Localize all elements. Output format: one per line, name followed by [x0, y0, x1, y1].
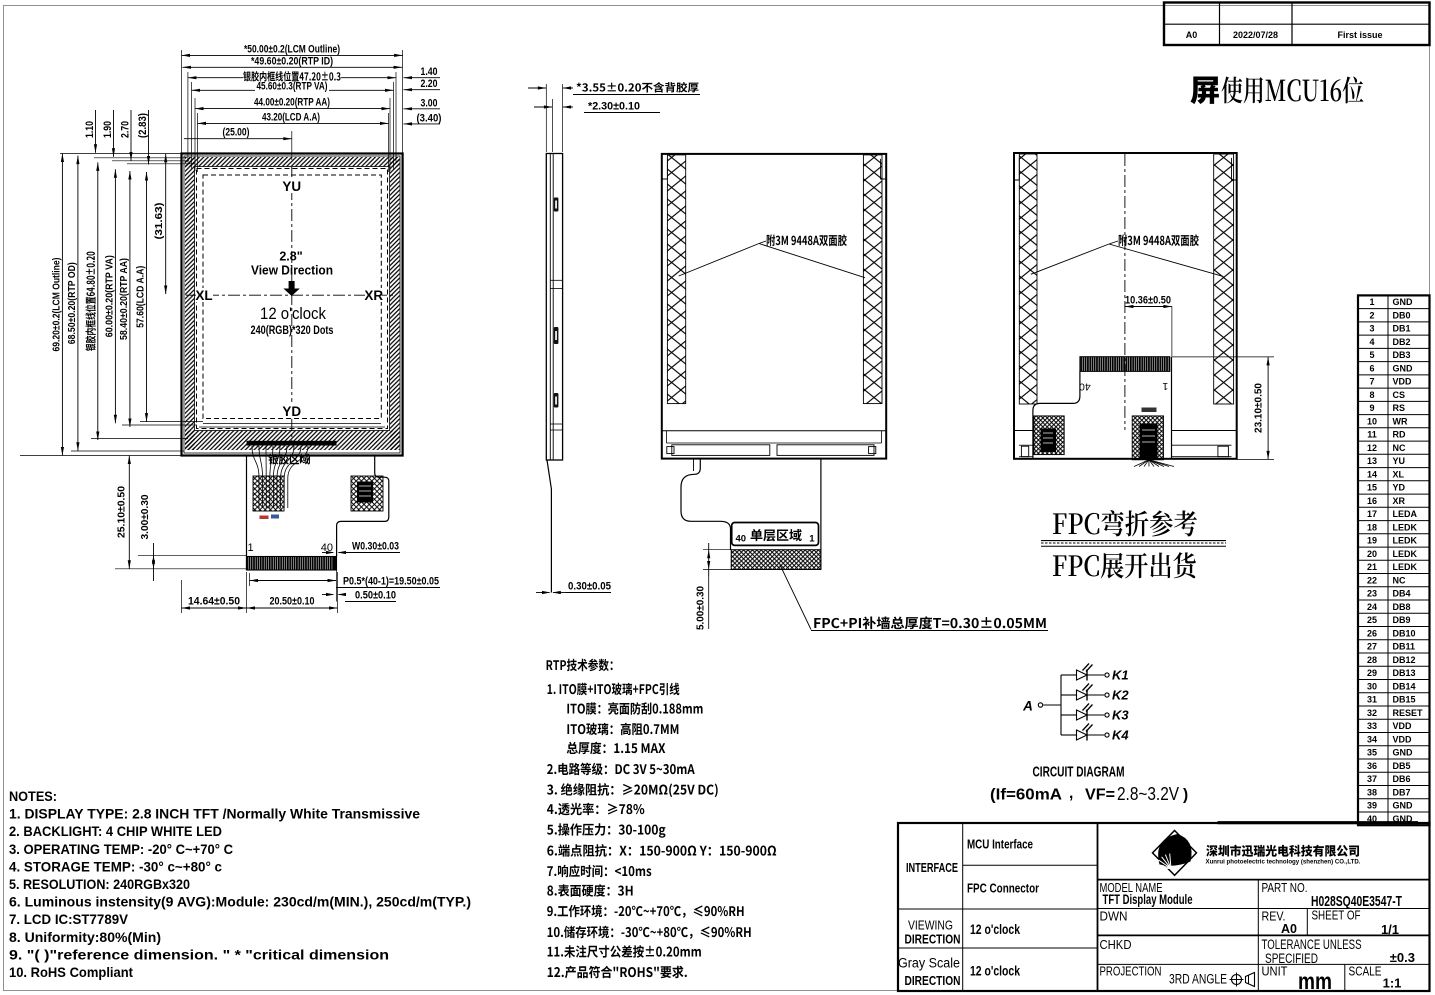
svg-text:DB4: DB4 [1393, 589, 1411, 599]
svg-text:VIEWING: VIEWING [908, 918, 953, 933]
svg-text:LEDK: LEDK [1393, 549, 1418, 559]
svg-text:DIRECTION: DIRECTION [905, 932, 961, 947]
svg-text:RESET: RESET [1393, 708, 1424, 718]
svg-text:12: 12 [1367, 443, 1377, 453]
svg-text:14: 14 [1367, 469, 1377, 479]
svg-text:12 o'clock: 12 o'clock [970, 964, 1020, 979]
svg-text:15: 15 [1367, 483, 1377, 493]
svg-text:(2.83): (2.83) [137, 113, 149, 138]
svg-text:W0.30±0.03: W0.30±0.03 [352, 541, 399, 553]
svg-text:DB10: DB10 [1393, 628, 1416, 638]
svg-text:DB6: DB6 [1393, 774, 1411, 784]
svg-text:A0: A0 [1281, 922, 1297, 936]
svg-text:1: 1 [248, 542, 254, 554]
svg-text:9: 9 [1369, 403, 1374, 413]
svg-text:4: 4 [1369, 337, 1374, 347]
svg-text:38: 38 [1367, 787, 1377, 797]
svg-text:RD: RD [1393, 430, 1406, 440]
svg-text:FPC Connector: FPC Connector [967, 881, 1039, 896]
svg-text:14.64±0.50: 14.64±0.50 [188, 596, 240, 608]
svg-text:DB13: DB13 [1393, 668, 1416, 678]
svg-text:DB12: DB12 [1393, 655, 1416, 665]
svg-text:DIRECTION: DIRECTION [905, 973, 961, 988]
svg-text:*49.60±0.20(RTP ID): *49.60±0.20(RTP ID) [251, 55, 333, 67]
svg-text:24: 24 [1367, 602, 1377, 612]
svg-text:7. LCD IC:ST7789V: 7. LCD IC:ST7789V [9, 911, 129, 927]
svg-text:21: 21 [1367, 562, 1377, 572]
svg-text:VDD: VDD [1393, 721, 1413, 731]
svg-text:8. Uniformity:80%(Min): 8. Uniformity:80%(Min) [9, 929, 161, 945]
svg-text:DB5: DB5 [1393, 761, 1411, 771]
svg-text:DB1: DB1 [1393, 324, 1411, 334]
svg-text:K1: K1 [1112, 668, 1129, 683]
svg-text:37: 37 [1367, 774, 1377, 784]
svg-text:1: 1 [809, 534, 815, 545]
svg-text:PROJECTION: PROJECTION [1100, 964, 1162, 979]
svg-text:6: 6 [1369, 363, 1374, 373]
svg-text:*2.30±0.10: *2.30±0.10 [588, 101, 640, 113]
svg-text:,: , [1069, 785, 1073, 802]
svg-text:57.60(LCD A.A): 57.60(LCD A.A) [135, 266, 147, 328]
svg-text:LEDK: LEDK [1393, 536, 1418, 546]
svg-text:20: 20 [1367, 549, 1377, 559]
svg-text:36: 36 [1367, 761, 1377, 771]
svg-text:NC: NC [1393, 443, 1406, 453]
svg-text:CHKD: CHKD [1100, 937, 1132, 952]
svg-text:4. STORAGE TEMP: -30° c~+80° c: 4. STORAGE TEMP: -30° c~+80° c [9, 858, 222, 874]
svg-text:YU: YU [1393, 456, 1406, 466]
svg-text:1: 1 [1162, 380, 1168, 392]
svg-text:3: 3 [1369, 324, 1374, 334]
svg-text:DB9: DB9 [1393, 615, 1411, 625]
svg-text:GND: GND [1393, 801, 1414, 811]
svg-text:5. RESOLUTION: 240RGBx320: 5. RESOLUTION: 240RGBx320 [9, 876, 190, 892]
svg-text:1: 1 [1369, 297, 1374, 307]
svg-text:P0.5*(40-1)=19.50±0.05: P0.5*(40-1)=19.50±0.05 [343, 576, 439, 588]
svg-text:45.60±0.3(RTP VA): 45.60±0.3(RTP VA) [257, 80, 328, 92]
svg-text:23: 23 [1367, 589, 1377, 599]
svg-text:XR: XR [1393, 496, 1406, 506]
svg-text:LEDK: LEDK [1393, 562, 1418, 572]
svg-text:mm: mm [1298, 968, 1332, 994]
svg-text:DB15: DB15 [1393, 695, 1416, 705]
svg-text:(31.63): (31.63) [153, 203, 165, 240]
svg-text:16: 16 [1367, 496, 1377, 506]
svg-text:2: 2 [1369, 311, 1374, 321]
svg-text:26: 26 [1367, 628, 1377, 638]
svg-text:30: 30 [1367, 681, 1377, 691]
svg-text:SCALE: SCALE [1349, 964, 1382, 979]
svg-text:XL: XL [1393, 469, 1405, 479]
svg-text:0.50±0.10: 0.50±0.10 [355, 590, 396, 602]
svg-text:25.10±0.50: 25.10±0.50 [116, 486, 128, 538]
svg-text:9. "( )"reference dimension. ": 9. "( )"reference dimension. " * "critic… [9, 946, 389, 962]
svg-text:10. RoHS Compliant: 10. RoHS Compliant [9, 964, 133, 980]
svg-text:3.00: 3.00 [421, 97, 438, 109]
svg-text:LEDK: LEDK [1393, 522, 1418, 532]
svg-text:1.40: 1.40 [421, 66, 438, 78]
svg-text:GND: GND [1393, 748, 1414, 758]
svg-text:3. OPERATING TEMP: -20° C~+70°: 3. OPERATING TEMP: -20° C~+70° C [9, 841, 233, 857]
svg-text:K3: K3 [1112, 708, 1129, 723]
svg-text:YU: YU [282, 179, 301, 194]
svg-text:XR: XR [364, 288, 383, 303]
svg-text:12 o'clock: 12 o'clock [260, 305, 327, 323]
svg-text:2.20: 2.20 [421, 78, 438, 90]
svg-text:34: 34 [1367, 734, 1377, 744]
svg-text:Gray Scale: Gray Scale [898, 956, 960, 971]
svg-text:VF=: VF= [1085, 787, 1115, 804]
svg-text:58.40±0.20(RTP AA): 58.40±0.20(RTP AA) [118, 258, 130, 340]
svg-text:28: 28 [1367, 655, 1377, 665]
svg-text:22: 22 [1367, 575, 1377, 585]
svg-text:UNIT: UNIT [1262, 964, 1288, 979]
svg-text:1.10: 1.10 [84, 121, 96, 138]
svg-text:NOTES:: NOTES: [9, 788, 57, 804]
svg-text:2.8~3.2V: 2.8~3.2V [1117, 783, 1180, 804]
svg-text:2.70: 2.70 [120, 121, 132, 138]
svg-text:68.50±0.20(RTP OD): 68.50±0.20(RTP OD) [66, 262, 78, 344]
svg-text:43.20(LCD A.A): 43.20(LCD A.A) [262, 111, 320, 123]
svg-text:DB3: DB3 [1393, 350, 1411, 360]
svg-text:TFT Display Module: TFT Display Module [1103, 892, 1193, 907]
svg-text:Xunrui photoelectric technolog: Xunrui photoelectric technology (shenzhe… [1206, 859, 1361, 866]
svg-text:RS: RS [1393, 403, 1406, 413]
svg-text:YD: YD [282, 404, 301, 419]
svg-text:DB7: DB7 [1393, 787, 1411, 797]
svg-text:DB0: DB0 [1393, 311, 1411, 321]
svg-text:25: 25 [1367, 615, 1377, 625]
svg-text:35: 35 [1367, 748, 1377, 758]
svg-text:3RD ANGLE: 3RD ANGLE [1169, 972, 1227, 987]
svg-text:12 o'clock: 12 o'clock [970, 922, 1020, 937]
svg-text:39: 39 [1367, 801, 1377, 811]
svg-text:18: 18 [1367, 522, 1377, 532]
svg-text:6. Luminous instensity(9 AVG):: 6. Luminous instensity(9 AVG):Module: 23… [9, 894, 471, 910]
svg-text:3.00±0.30: 3.00±0.30 [139, 494, 151, 539]
svg-text:20.50±0.10: 20.50±0.10 [270, 596, 315, 608]
svg-text:2022/07/28: 2022/07/28 [1233, 30, 1278, 40]
svg-text:1/1: 1/1 [1381, 922, 1399, 937]
svg-text:GND: GND [1393, 297, 1414, 307]
svg-text:A0: A0 [1186, 30, 1198, 40]
svg-text:40: 40 [1079, 381, 1091, 393]
svg-text:44.00±0.20(RTP AA): 44.00±0.20(RTP AA) [254, 97, 330, 109]
svg-text:DB11: DB11 [1393, 642, 1416, 652]
svg-text:1:1: 1:1 [1383, 976, 1402, 991]
svg-text:*50.00±0.2(LCM Outline): *50.00±0.2(LCM Outline) [244, 43, 340, 55]
svg-text:2. BACKLIGHT: 4 CHIP WHITE LED: 2. BACKLIGHT: 4 CHIP WHITE LED [9, 823, 222, 839]
svg-text:(3.40): (3.40) [417, 112, 442, 124]
svg-text:7: 7 [1369, 377, 1374, 387]
svg-text:±0.3: ±0.3 [1390, 950, 1415, 965]
svg-text:DWN: DWN [1100, 909, 1128, 924]
svg-text:CIRCUIT DIAGRAM: CIRCUIT DIAGRAM [1033, 765, 1125, 781]
svg-text:40: 40 [736, 534, 747, 545]
svg-text:View Direction: View Direction [251, 264, 333, 278]
svg-text:TOLERANCE UNLESS: TOLERANCE UNLESS [1262, 937, 1362, 952]
svg-text:1.90: 1.90 [102, 121, 114, 138]
svg-text:10: 10 [1367, 416, 1377, 426]
svg-text:XL: XL [195, 288, 212, 303]
svg-text:PART NO.: PART NO. [1262, 880, 1308, 895]
svg-text:60.00±0.20(RTP VA): 60.00±0.20(RTP VA) [103, 255, 115, 337]
svg-text:19: 19 [1367, 536, 1377, 546]
svg-text:8: 8 [1369, 390, 1374, 400]
svg-text:33: 33 [1367, 721, 1377, 731]
svg-text:0.30±0.05: 0.30±0.05 [568, 581, 611, 593]
svg-text:GND: GND [1393, 363, 1414, 373]
svg-text:WR: WR [1393, 416, 1408, 426]
svg-text:(If=60mA: (If=60mA [990, 787, 1062, 804]
svg-text:DB2: DB2 [1393, 337, 1411, 347]
svg-text:CS: CS [1393, 390, 1406, 400]
svg-text:First issue: First issue [1337, 30, 1382, 40]
svg-text:K2: K2 [1112, 688, 1129, 703]
svg-text:11: 11 [1367, 430, 1377, 440]
svg-text:10.36±0.50: 10.36±0.50 [1125, 295, 1171, 307]
svg-text:5.00±0.30: 5.00±0.30 [695, 586, 707, 630]
svg-text:(25.00): (25.00) [223, 127, 250, 139]
svg-text:DB8: DB8 [1393, 602, 1411, 612]
svg-text:LEDA: LEDA [1393, 509, 1418, 519]
svg-text:A: A [1022, 699, 1033, 714]
svg-text:17: 17 [1367, 509, 1377, 519]
svg-text:23.10±0.50: 23.10±0.50 [1253, 383, 1265, 433]
svg-text:5: 5 [1369, 350, 1374, 360]
svg-text:32: 32 [1367, 708, 1377, 718]
svg-text:YD: YD [1393, 483, 1406, 493]
svg-text:2.8": 2.8" [279, 250, 302, 264]
svg-text:): ) [1183, 787, 1188, 804]
svg-text:SHEET OF: SHEET OF [1312, 908, 1361, 923]
svg-text:31: 31 [1367, 695, 1377, 705]
svg-text:VDD: VDD [1393, 734, 1413, 744]
svg-text:29: 29 [1367, 668, 1377, 678]
svg-text:VDD: VDD [1393, 377, 1413, 387]
svg-text:27: 27 [1367, 642, 1377, 652]
svg-text:1. DISPLAY TYPE: 2.8 INCH TFT: 1. DISPLAY TYPE: 2.8 INCH TFT /Normally … [9, 806, 420, 822]
svg-text:MCU Interface: MCU Interface [967, 837, 1033, 852]
svg-text:NC: NC [1393, 575, 1406, 585]
svg-text:69.20±0.2(LCM Outline): 69.20±0.2(LCM Outline) [50, 258, 62, 352]
svg-text:240(RGB)*320 Dots: 240(RGB)*320 Dots [251, 323, 334, 337]
svg-text:K4: K4 [1112, 728, 1129, 743]
svg-text:13: 13 [1367, 456, 1377, 466]
svg-text:DB14: DB14 [1393, 681, 1416, 691]
svg-text:INTERFACE: INTERFACE [906, 860, 958, 875]
